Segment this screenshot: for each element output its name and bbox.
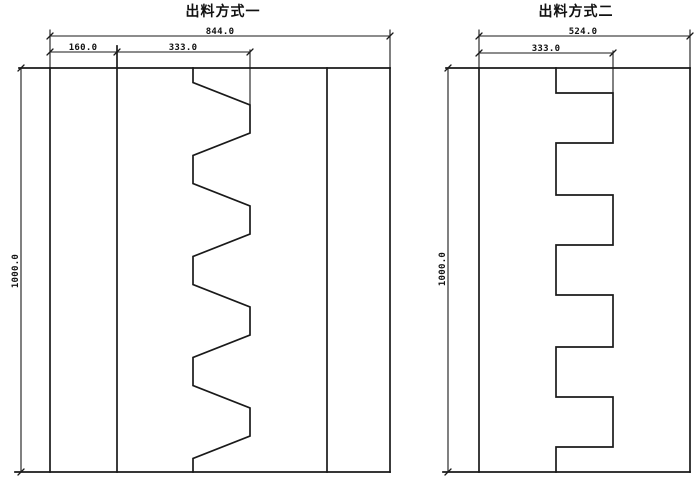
dimension-label: 333.0 bbox=[532, 44, 561, 54]
dim-total-width-one: 844.0 bbox=[47, 27, 393, 68]
dim-height-two: 1000.0 bbox=[438, 65, 451, 475]
cad-drawing-svg: 出料方式一 844.0 160.0 333.0 bbox=[0, 0, 698, 481]
diagram-two-title: 出料方式二 bbox=[539, 3, 614, 19]
dimension-label: 1000.0 bbox=[438, 252, 448, 286]
dim-teeth-span-one: 333.0 bbox=[117, 43, 253, 105]
diagram-one-title: 出料方式一 bbox=[186, 3, 261, 19]
dim-height-one: 1000.0 bbox=[11, 65, 24, 475]
dim-left-band-one: 160.0 bbox=[47, 43, 120, 55]
dimension-label: 524.0 bbox=[569, 27, 598, 37]
diagram-method-one: 出料方式一 844.0 160.0 333.0 bbox=[11, 3, 393, 475]
teeth-profile-trapezoid bbox=[193, 68, 250, 472]
dimension-label: 160.0 bbox=[69, 43, 98, 53]
dim-total-width-two: 524.0 bbox=[476, 27, 693, 68]
teeth-profile-square bbox=[556, 68, 613, 472]
dimension-label: 844.0 bbox=[206, 27, 235, 37]
dimension-label: 333.0 bbox=[169, 43, 198, 53]
dimension-label: 1000.0 bbox=[11, 254, 21, 288]
diagram-method-two: 出料方式二 524.0 333.0 1000.0 bbox=[438, 3, 693, 475]
drawing-canvas: 出料方式一 844.0 160.0 333.0 bbox=[0, 0, 698, 481]
